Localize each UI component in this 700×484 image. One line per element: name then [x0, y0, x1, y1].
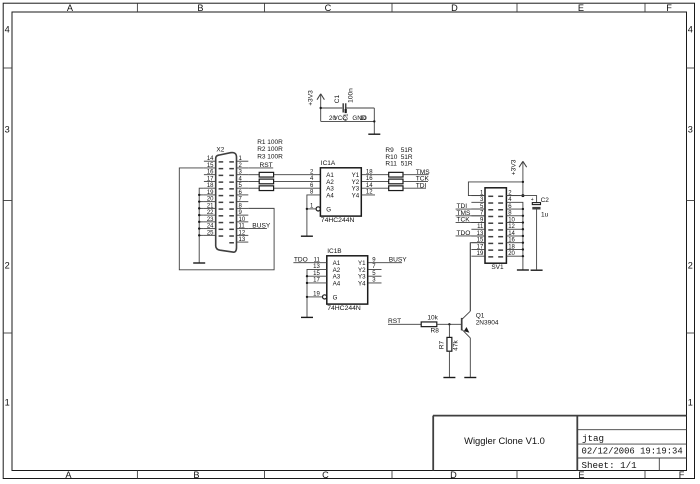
svg-text:2: 2	[688, 261, 693, 271]
svg-text:A4: A4	[333, 280, 341, 287]
svg-text:F: F	[679, 470, 685, 480]
svg-text:02/12/2006 19:19:34: 02/12/2006 19:19:34	[582, 447, 683, 457]
svg-text:IC1A: IC1A	[321, 160, 336, 167]
svg-text:15: 15	[207, 163, 214, 169]
svg-text:12: 12	[508, 224, 515, 230]
svg-text:23: 23	[207, 217, 214, 223]
svg-text:Wiggler Clone V1.0: Wiggler Clone V1.0	[464, 435, 545, 446]
svg-text:TDI: TDI	[416, 182, 427, 189]
svg-text:14: 14	[207, 156, 214, 162]
svg-text:2: 2	[5, 261, 10, 271]
svg-text:12: 12	[239, 230, 246, 236]
svg-text:10: 10	[239, 217, 246, 223]
svg-text:10: 10	[508, 217, 515, 223]
svg-text:1: 1	[688, 397, 693, 407]
svg-text:47k: 47k	[452, 340, 459, 351]
svg-text:G: G	[333, 294, 338, 301]
svg-text:17: 17	[477, 244, 484, 250]
svg-text:Sheet: 1/1: Sheet: 1/1	[582, 460, 638, 471]
svg-text:A: A	[65, 470, 72, 480]
svg-text:BUSY: BUSY	[252, 223, 271, 230]
svg-text:14: 14	[508, 231, 515, 237]
svg-text:24: 24	[207, 224, 214, 230]
svg-text:74HC244N: 74HC244N	[327, 305, 361, 312]
svg-text:+: +	[531, 197, 534, 203]
svg-text:2N3904: 2N3904	[476, 320, 499, 327]
svg-text:25: 25	[207, 230, 214, 236]
svg-text:E: E	[578, 3, 584, 13]
svg-text:100n: 100n	[347, 88, 354, 103]
svg-text:4: 4	[5, 24, 10, 34]
svg-text:Y4: Y4	[358, 280, 366, 287]
svg-text:21: 21	[207, 203, 214, 209]
svg-text:+3V3: +3V3	[308, 90, 315, 106]
svg-text:10: 10	[360, 115, 367, 122]
svg-text:R7: R7	[438, 340, 445, 349]
svg-text:SV1: SV1	[491, 264, 504, 271]
svg-text:100R: 100R	[267, 139, 283, 146]
svg-text:19: 19	[477, 251, 484, 257]
svg-text:BUSY: BUSY	[389, 257, 408, 264]
svg-text:IC1B: IC1B	[327, 248, 341, 255]
svg-text:TCK: TCK	[457, 217, 471, 224]
svg-text:18: 18	[366, 169, 373, 175]
svg-text:18: 18	[207, 183, 214, 189]
svg-text:3: 3	[688, 124, 693, 134]
svg-text:VCC: VCC	[334, 115, 348, 122]
svg-text:14: 14	[366, 183, 373, 189]
svg-text:100R: 100R	[267, 146, 283, 153]
svg-text:F: F	[666, 3, 672, 13]
svg-text:C: C	[322, 470, 329, 480]
svg-text:18: 18	[508, 244, 515, 250]
svg-text:4: 4	[688, 24, 693, 34]
svg-text:R1: R1	[257, 139, 266, 146]
svg-text:1: 1	[5, 397, 10, 407]
svg-text:3: 3	[5, 124, 10, 134]
svg-text:G: G	[326, 206, 331, 213]
svg-text:16: 16	[366, 176, 373, 182]
svg-text:13: 13	[239, 237, 246, 243]
svg-text:D: D	[450, 470, 457, 480]
svg-text:C: C	[325, 3, 332, 13]
svg-text:17: 17	[207, 176, 214, 182]
svg-text:RST: RST	[260, 162, 273, 169]
svg-text:20: 20	[207, 197, 214, 203]
svg-text:R2: R2	[257, 146, 266, 153]
svg-text:Q1: Q1	[476, 312, 485, 319]
svg-text:B: B	[197, 3, 203, 13]
svg-text:10k: 10k	[427, 315, 438, 322]
svg-text:A: A	[67, 3, 74, 13]
svg-text:TDO: TDO	[294, 257, 308, 264]
svg-text:C2: C2	[541, 197, 550, 204]
svg-text:A4: A4	[326, 192, 334, 199]
svg-text:1u: 1u	[541, 211, 549, 218]
svg-text:16: 16	[207, 170, 214, 176]
svg-text:jtag: jtag	[582, 433, 604, 444]
svg-text:11: 11	[477, 224, 484, 230]
svg-text:R8: R8	[431, 327, 440, 334]
svg-text:C1: C1	[334, 94, 341, 103]
svg-text:Y4: Y4	[352, 192, 360, 199]
svg-text:X2: X2	[216, 146, 224, 153]
svg-text:D: D	[451, 3, 458, 13]
svg-text:TDO: TDO	[457, 230, 471, 237]
svg-text:20: 20	[508, 251, 515, 257]
svg-text:R11: R11	[385, 160, 397, 167]
svg-text:11: 11	[239, 224, 246, 230]
svg-text:74HC244N: 74HC244N	[321, 217, 355, 224]
svg-text:16: 16	[508, 238, 515, 244]
svg-text:22: 22	[207, 210, 214, 216]
svg-text:E: E	[578, 470, 584, 480]
svg-text:100R: 100R	[267, 153, 283, 160]
svg-text:B: B	[193, 470, 199, 480]
svg-text:51R: 51R	[401, 160, 413, 167]
svg-text:19: 19	[207, 190, 214, 196]
svg-text:R3: R3	[257, 153, 266, 160]
svg-text:+3V3: +3V3	[511, 159, 518, 175]
